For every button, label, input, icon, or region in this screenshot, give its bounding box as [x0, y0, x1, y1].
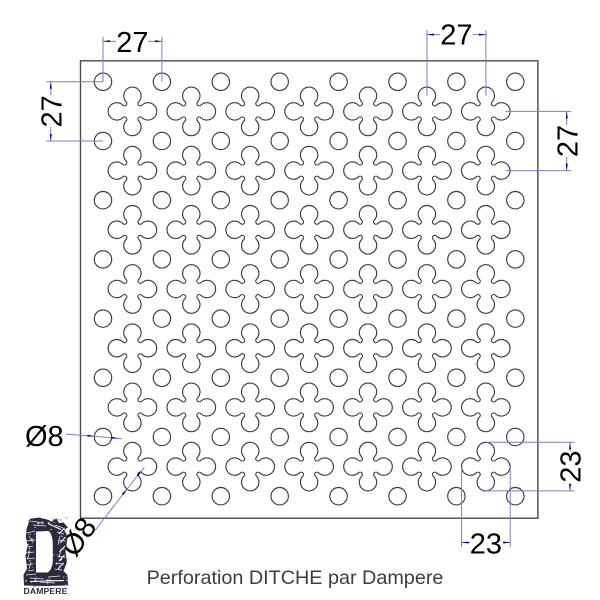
svg-text:27: 27	[552, 125, 584, 157]
svg-text:27: 27	[37, 95, 69, 127]
svg-text:27: 27	[116, 27, 148, 59]
svg-text:23: 23	[470, 529, 502, 561]
svg-text:Perforation DITCHE par Dampere: Perforation DITCHE par Dampere	[147, 567, 444, 589]
svg-text:27: 27	[440, 20, 472, 52]
svg-text:23: 23	[556, 450, 588, 482]
svg-text:Ø8: Ø8	[25, 421, 64, 453]
svg-text:DAMPERE: DAMPERE	[23, 586, 67, 596]
